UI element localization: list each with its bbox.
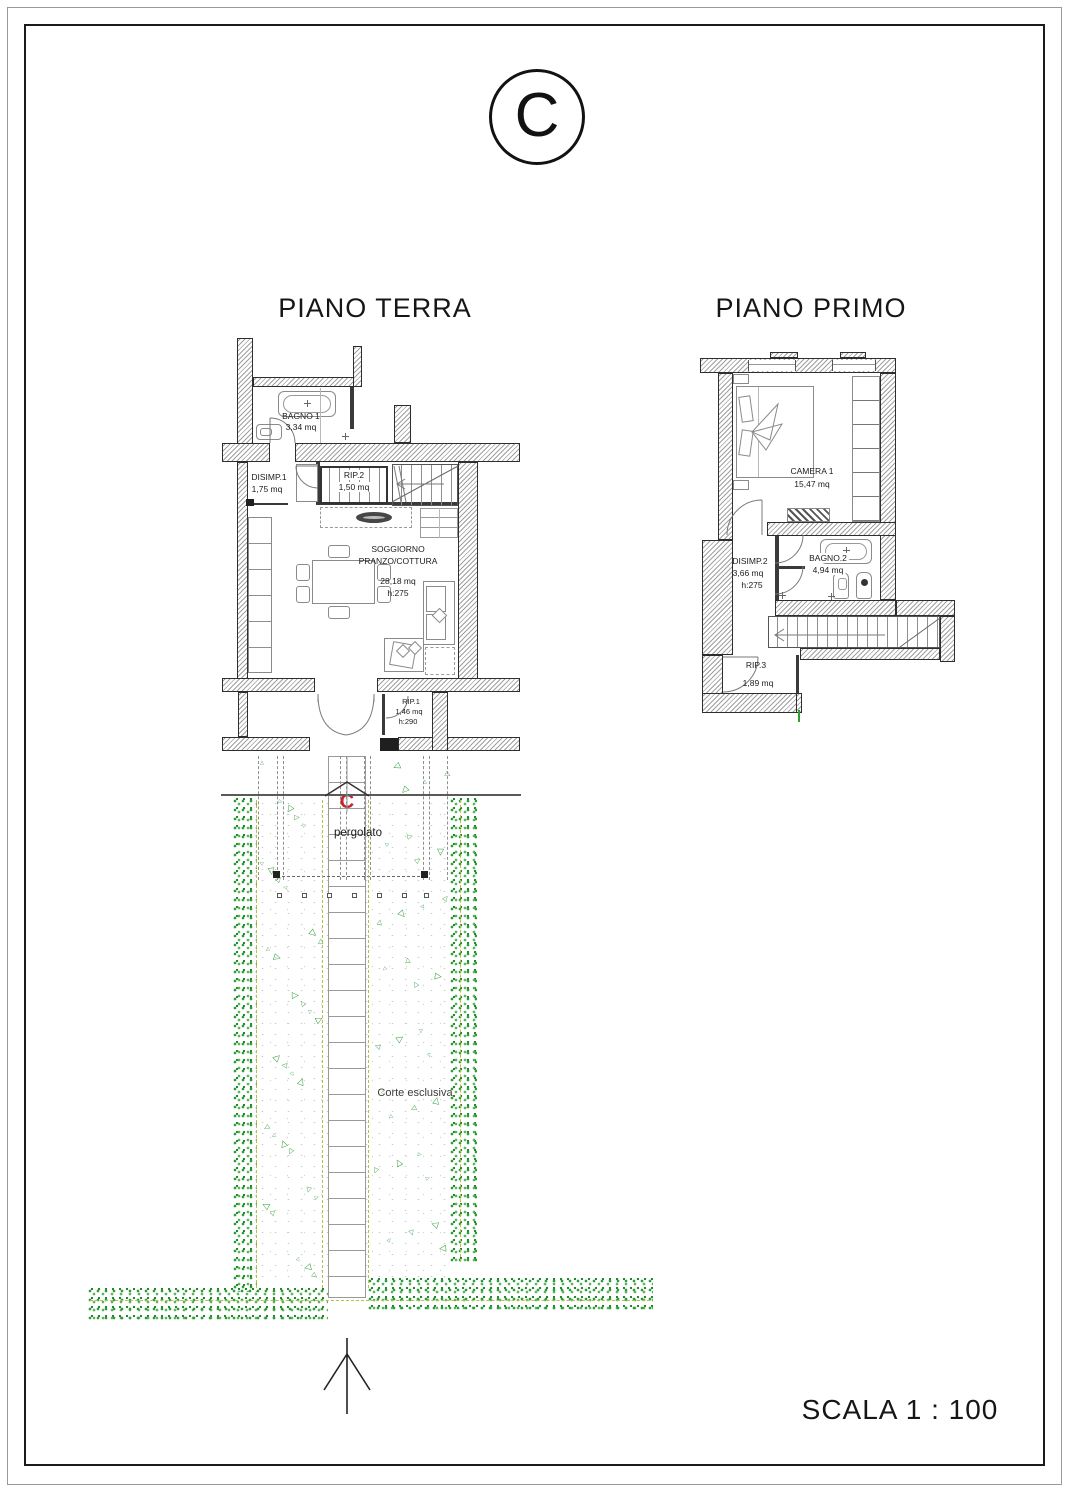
door-arc <box>775 535 803 563</box>
room-area: 3,66 mq <box>733 568 764 578</box>
drain-mark <box>828 593 835 600</box>
entrance-arrow <box>324 1338 370 1414</box>
bed-headboard-fan <box>752 404 782 450</box>
room-label: RIP.2 <box>342 470 366 480</box>
room-label: DISIMP.2 <box>732 556 767 566</box>
room-area: 4,94 mq <box>811 565 846 575</box>
room-label: CAMERA 1 <box>791 466 834 476</box>
door-arc <box>727 500 762 535</box>
room-area: 28,18 mq <box>380 576 415 586</box>
room-label: RIP.3 <box>746 660 766 670</box>
plan-title-ground: PIANO TERRA <box>278 293 472 324</box>
room-height: h:290 <box>399 717 418 726</box>
door-arc <box>296 466 318 488</box>
room-label: PRANZO/COTTURA <box>359 556 438 566</box>
stair-direction-arrow <box>397 479 444 489</box>
room-height: h:275 <box>741 580 762 590</box>
stair-direction-arrow <box>775 629 885 641</box>
stair-diagonal <box>900 618 940 647</box>
room-label: BAGNO.2 <box>807 553 849 563</box>
plan-title-first: PIANO PRIMO <box>715 293 906 324</box>
room-height: h:275 <box>387 588 408 598</box>
drain-mark <box>342 433 349 440</box>
room-area: 15,47 mq <box>794 479 829 489</box>
first-floor-linework <box>700 352 958 736</box>
faucet-mark <box>304 400 311 407</box>
room-label: BAGNO 1 <box>282 411 320 421</box>
first-floor-plan: CAMERA 1 15,47 mq DISIMP.2 3,66 mq h:275… <box>700 352 958 736</box>
room-area: 1,46 mq <box>395 707 422 716</box>
room-label: RIP.1 <box>402 697 420 706</box>
ground-floor-plan: BAGNO 1 3,34 mq DISIMP.1 1,75 mq RIP.2 1… <box>222 338 522 764</box>
door-arc <box>775 566 803 594</box>
french-door-arc <box>318 694 346 735</box>
room-area: 1,50 mq <box>337 482 372 492</box>
site-linework <box>0 740 1069 1492</box>
architectural-sheet: { "sheet": { "section_circle_letter": "C… <box>0 0 1069 1492</box>
room-area: 1,75 mq <box>252 484 283 494</box>
room-area: 3,34 mq <box>286 422 317 432</box>
room-label: DISIMP.1 <box>251 472 286 482</box>
section-marker-circle: C <box>489 69 585 165</box>
room-label: SOGGIORNO <box>371 544 424 554</box>
room-area: 1,89 mq <box>743 678 774 688</box>
drain-mark <box>779 592 786 599</box>
french-door-arc <box>346 694 374 735</box>
section-marker-letter: C <box>515 81 560 150</box>
